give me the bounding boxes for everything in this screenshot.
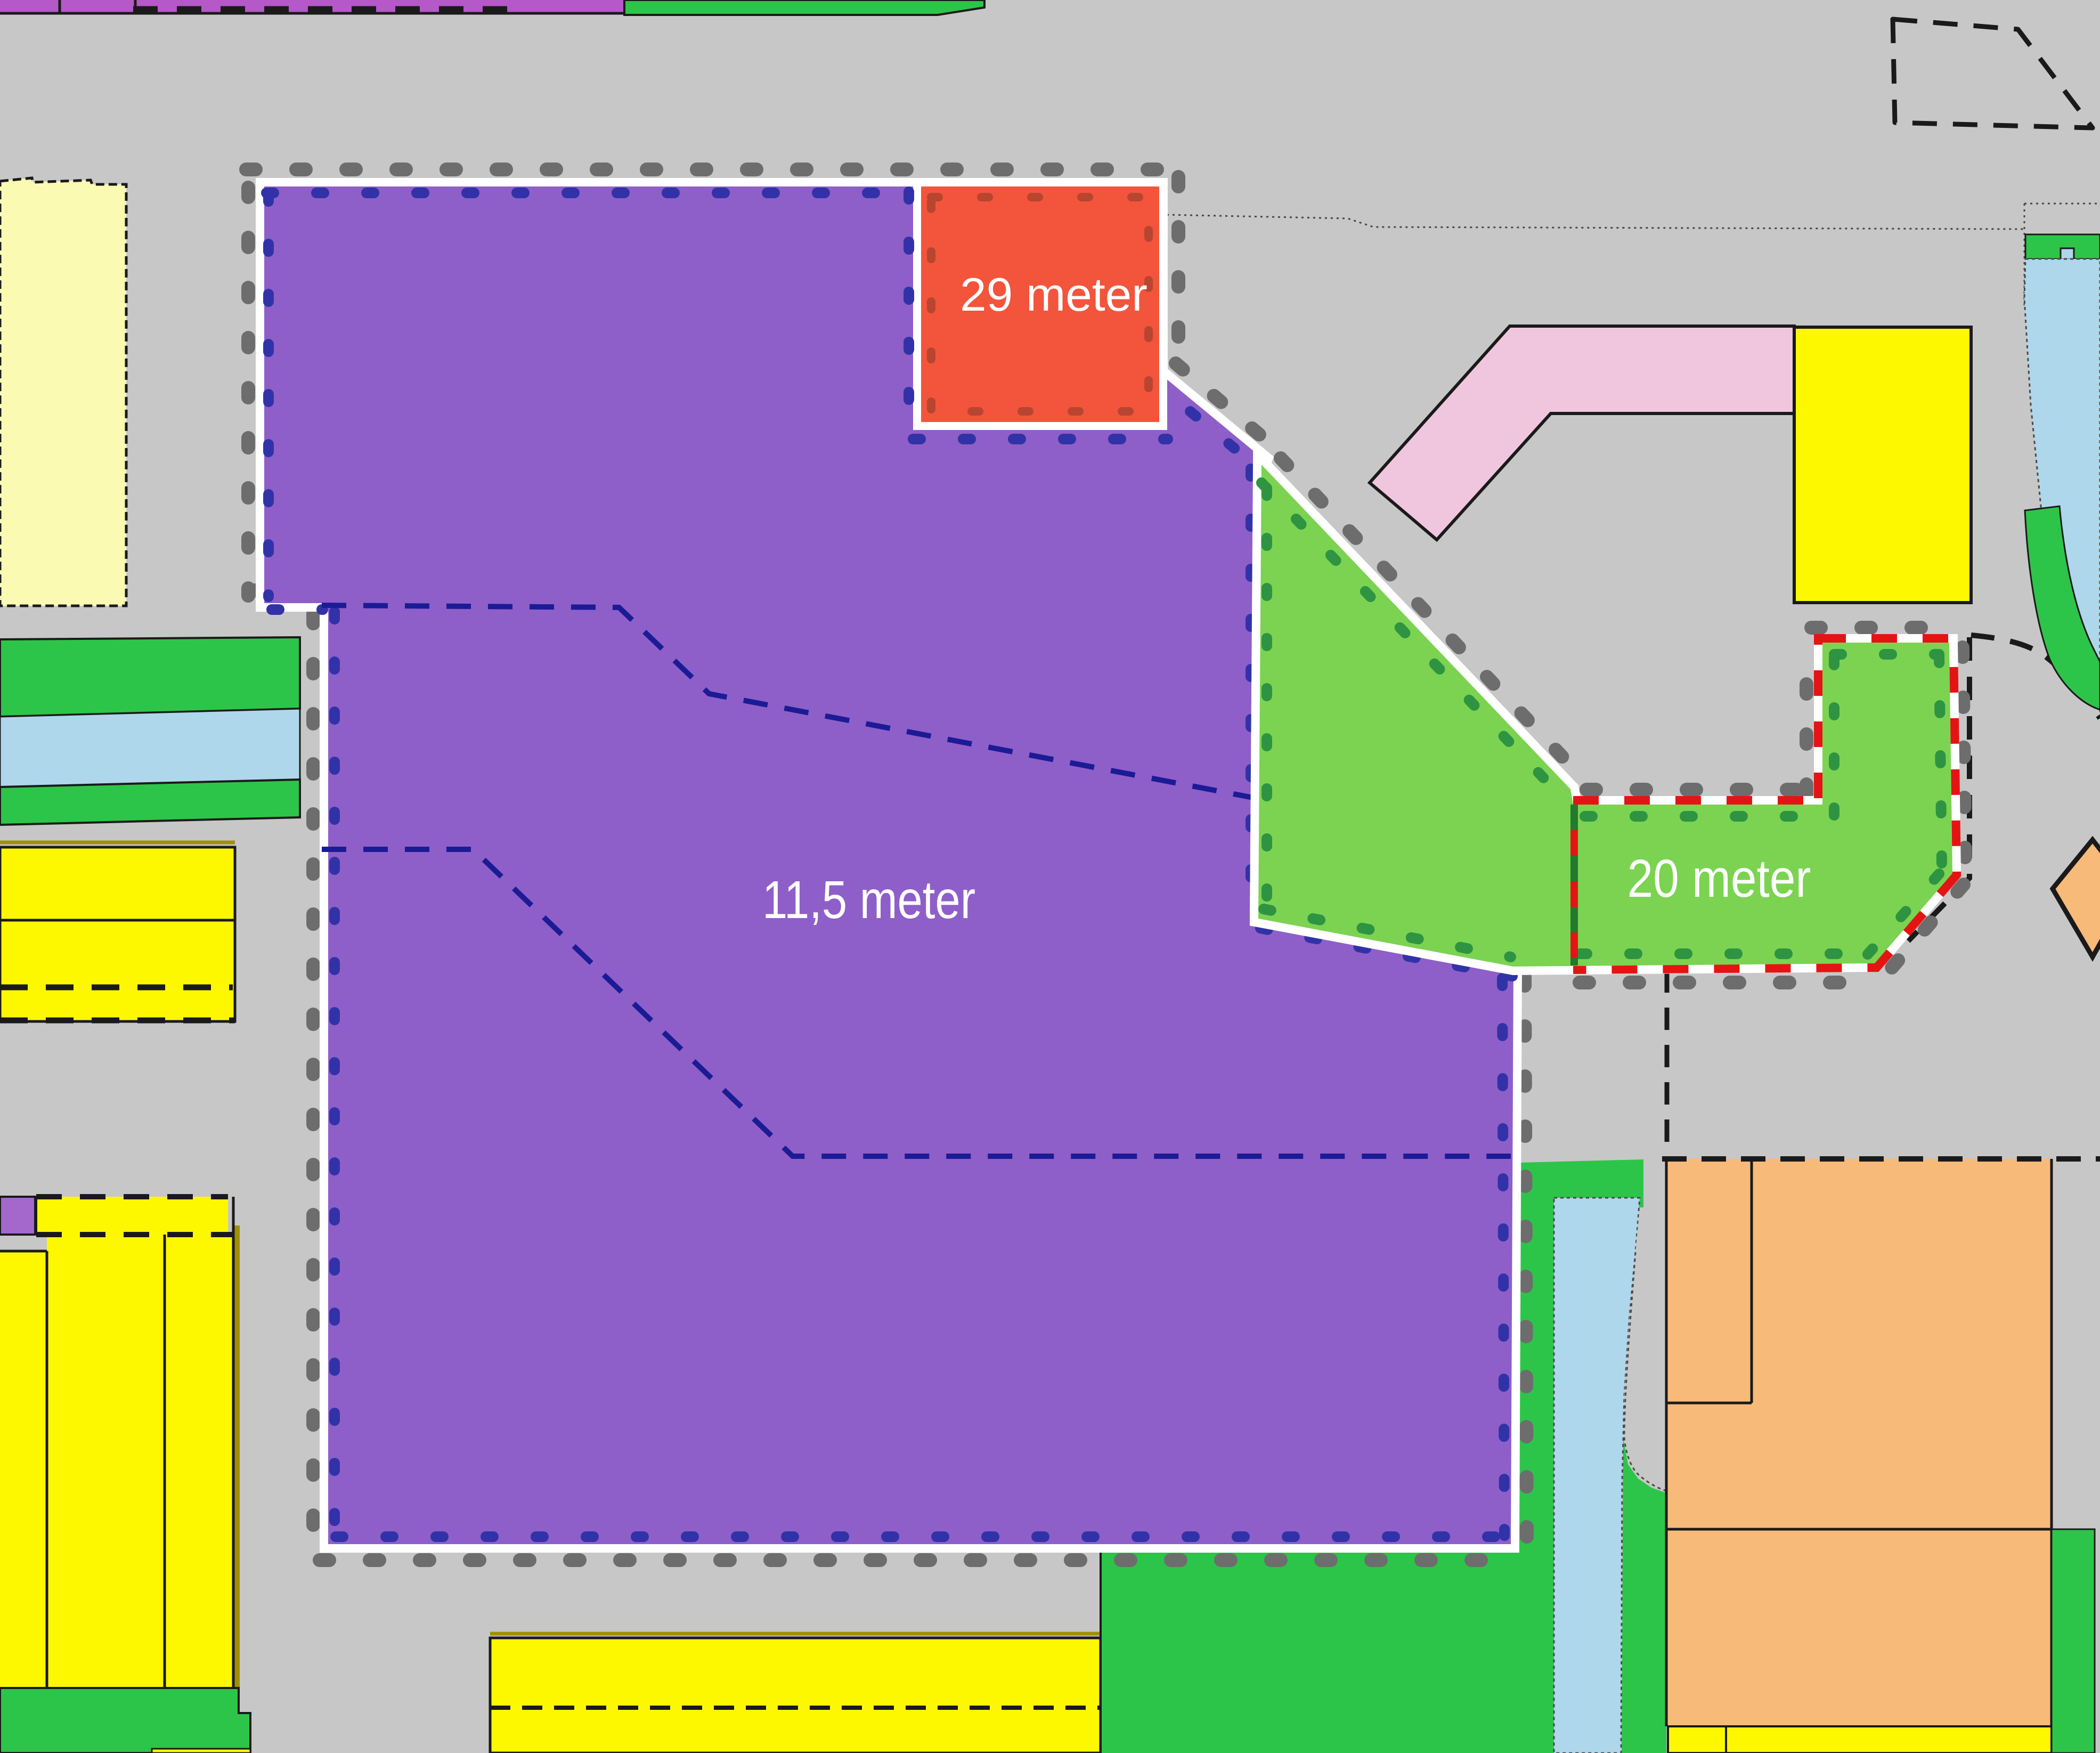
svg-text:29 meter: 29 meter [960, 268, 1147, 321]
svg-text:20 meter: 20 meter [1627, 849, 1811, 908]
svg-text:11,5 meter: 11,5 meter [762, 870, 975, 930]
